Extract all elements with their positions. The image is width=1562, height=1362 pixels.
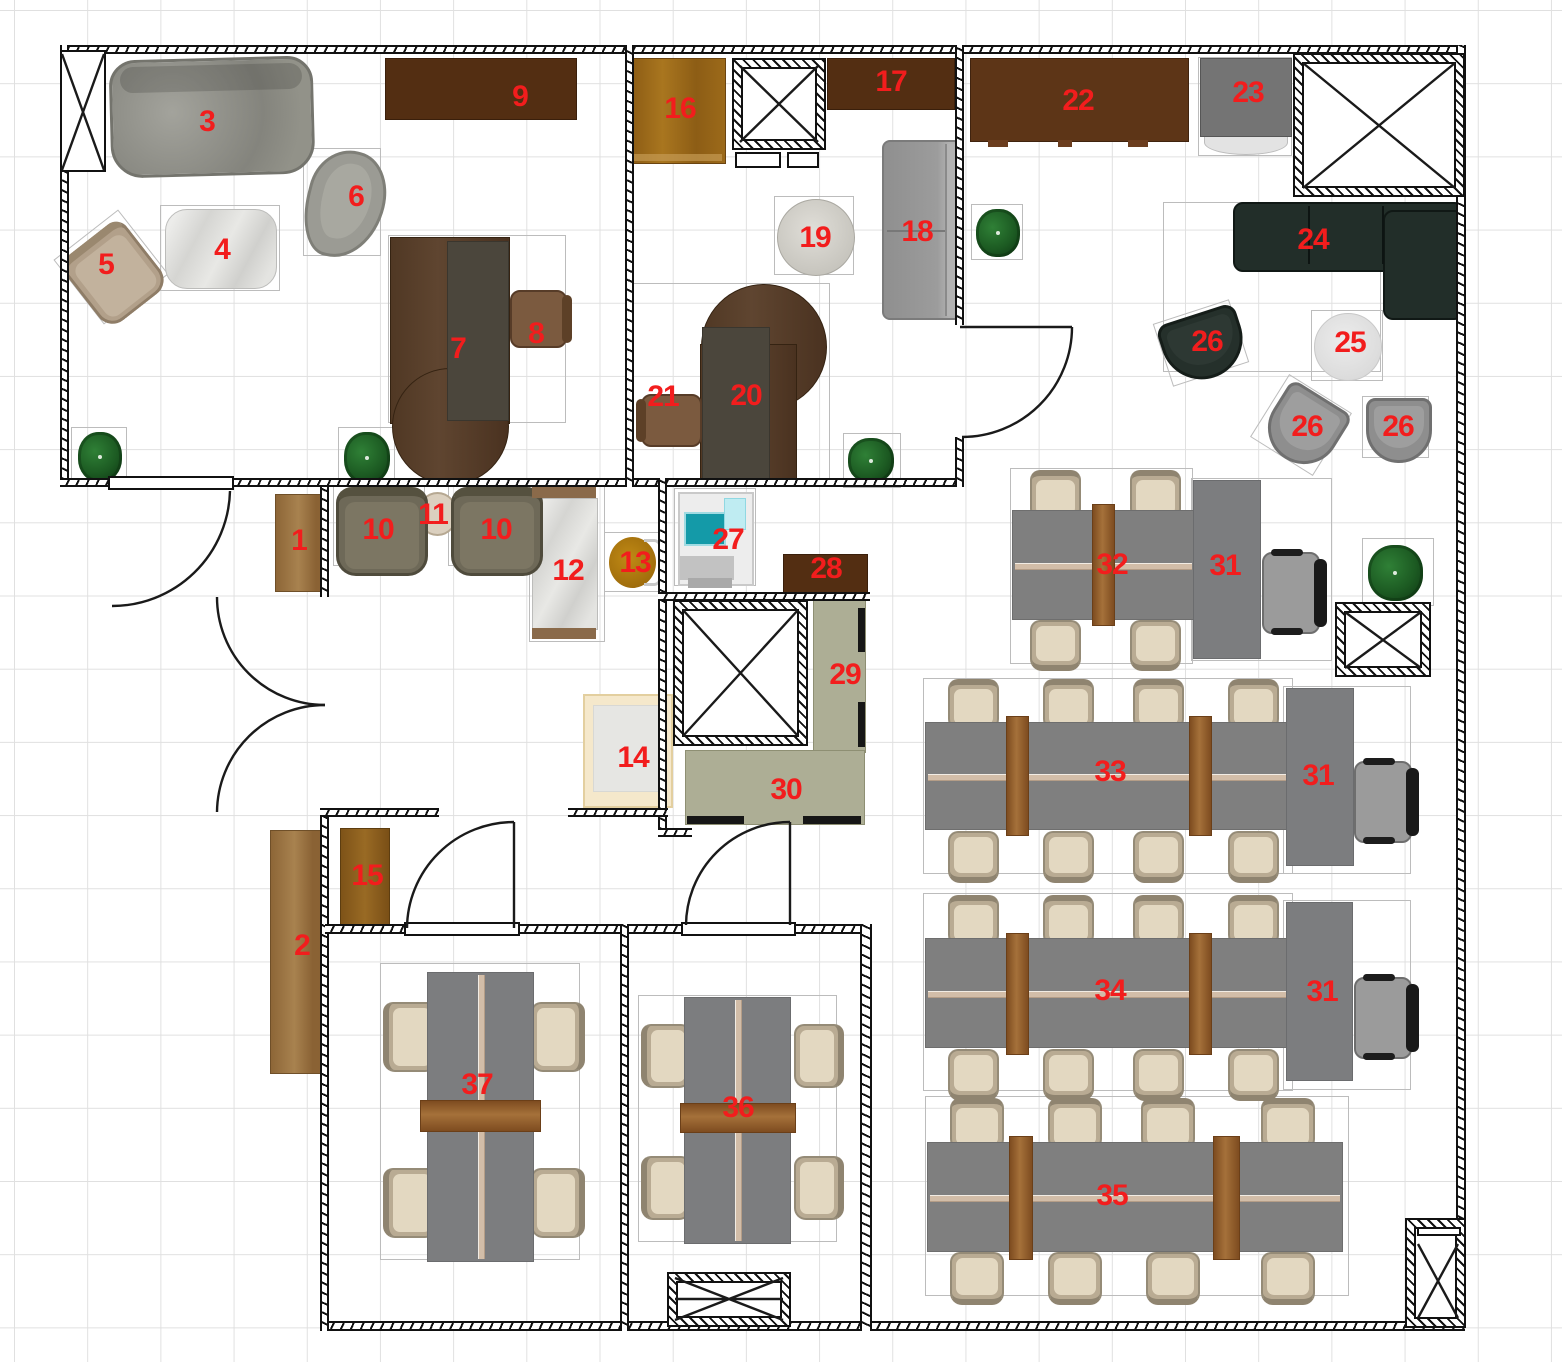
- item-label-13: 13: [619, 548, 650, 578]
- item-label-31: 31: [1302, 761, 1333, 791]
- item-label-28: 28: [810, 554, 841, 584]
- item-label-25: 25: [1334, 328, 1365, 358]
- chair[interactable]: [1133, 831, 1184, 883]
- item-label-26: 26: [1191, 327, 1222, 357]
- item-label-30: 30: [770, 775, 801, 805]
- desk-divider: [1189, 716, 1212, 836]
- chair[interactable]: [1228, 1049, 1279, 1101]
- item-label-3: 3: [199, 107, 215, 137]
- item-label-31: 31: [1209, 551, 1240, 581]
- item-label-22: 22: [1062, 86, 1093, 116]
- item-label-20: 20: [730, 381, 761, 411]
- door-panel[interactable]: [681, 922, 796, 936]
- elevator-shaft-icon: [732, 58, 826, 150]
- wall: [60, 478, 110, 487]
- desk-divider: [1006, 933, 1029, 1055]
- wall: [232, 478, 964, 487]
- printer-tray: [680, 556, 734, 580]
- item-label-14: 14: [617, 743, 648, 773]
- item-label-7: 7: [450, 334, 466, 364]
- shaft-door: [735, 152, 781, 168]
- desk-divider: [1009, 1136, 1033, 1260]
- desk-divider: [1006, 716, 1029, 836]
- chair[interactable]: [1043, 1049, 1094, 1101]
- wall: [320, 808, 439, 817]
- chair[interactable]: [950, 1252, 1004, 1305]
- door-panel[interactable]: [108, 476, 234, 490]
- desk-divider: [1189, 933, 1212, 1055]
- item-label-11: 11: [418, 500, 448, 530]
- item-label-34: 34: [1094, 976, 1125, 1006]
- sideboard-22-leg: [1128, 140, 1148, 147]
- bench-desk-35[interactable]: [927, 1142, 1343, 1252]
- item-label-21: 21: [647, 382, 678, 412]
- chair[interactable]: [1048, 1252, 1102, 1305]
- wall: [955, 437, 964, 487]
- chair[interactable]: [948, 1049, 999, 1101]
- counter-door-mark: [803, 816, 861, 824]
- item-label-6: 6: [348, 182, 364, 212]
- office-chair[interactable]: [1354, 761, 1412, 843]
- item-label-10: 10: [362, 515, 393, 545]
- item-label-27: 27: [712, 525, 743, 555]
- chair[interactable]: [794, 1156, 844, 1220]
- chair[interactable]: [794, 1024, 844, 1088]
- desk-7-worktop: [447, 241, 509, 421]
- wall: [325, 924, 405, 934]
- item-label-24: 24: [1297, 225, 1328, 255]
- console-table-12-cap: [532, 628, 596, 639]
- item-label-16: 16: [664, 94, 695, 124]
- item-label-29: 29: [829, 660, 860, 690]
- console-table-12-cap: [532, 487, 596, 498]
- shaft-door: [787, 152, 819, 168]
- item-label-19: 19: [799, 223, 830, 253]
- item-label-17: 17: [875, 67, 906, 97]
- item-label-5: 5: [98, 250, 114, 280]
- wall: [320, 810, 329, 1331]
- item-label-36: 36: [722, 1093, 753, 1123]
- chair[interactable]: [1130, 620, 1181, 671]
- plant-icon[interactable]: [848, 438, 894, 483]
- item-label-33: 33: [1094, 757, 1125, 787]
- item-label-26: 26: [1291, 412, 1322, 442]
- counter-door-mark: [687, 816, 744, 824]
- office-chair[interactable]: [1262, 552, 1320, 634]
- wall: [620, 924, 629, 1331]
- wall: [568, 808, 668, 817]
- duct-shaft-icon: [1335, 602, 1431, 677]
- table-37-runner: [420, 1100, 541, 1132]
- chair[interactable]: [1261, 1252, 1315, 1305]
- desk-divider: [1213, 1136, 1240, 1260]
- wall: [320, 478, 329, 597]
- plant-icon[interactable]: [78, 432, 122, 482]
- chair[interactable]: [531, 1168, 585, 1238]
- item-label-9: 9: [512, 82, 528, 112]
- sideboard-22-leg: [1058, 140, 1072, 147]
- sideboard-9[interactable]: [385, 58, 577, 120]
- plant-icon[interactable]: [344, 432, 390, 484]
- item-label-18: 18: [901, 217, 932, 247]
- window-icon: [60, 50, 106, 172]
- printer-base: [688, 578, 732, 588]
- wall: [325, 1321, 1465, 1331]
- stair-shaft-icon: [667, 1272, 791, 1327]
- item-label-12: 12: [552, 556, 583, 586]
- elevator-shaft-icon: [673, 600, 808, 746]
- chair[interactable]: [1043, 831, 1094, 883]
- item-label-15: 15: [351, 861, 382, 891]
- shaft-door: [1417, 1227, 1461, 1236]
- wall: [658, 828, 692, 837]
- item-label-37: 37: [461, 1070, 492, 1100]
- corner-sofa-24-chaise[interactable]: [1383, 210, 1464, 320]
- item-label-4: 4: [214, 235, 230, 265]
- item-label-10: 10: [480, 515, 511, 545]
- office-chair[interactable]: [1354, 977, 1412, 1059]
- item-label-2: 2: [294, 931, 310, 961]
- chair[interactable]: [531, 1002, 585, 1072]
- sideboard-22-leg: [988, 140, 1008, 147]
- chair[interactable]: [1228, 831, 1279, 883]
- plant-icon[interactable]: [976, 209, 1020, 257]
- counter-door-mark: [858, 702, 865, 747]
- sofa-cushion-line: [1382, 206, 1384, 264]
- wall: [860, 924, 872, 1331]
- item-label-23: 23: [1232, 78, 1263, 108]
- wall: [625, 45, 634, 487]
- wall: [955, 45, 964, 325]
- floor-plan-canvas: 1 2 3 4 5 6 7 8 9 10 10 11 12 13 14 15 1…: [0, 0, 1562, 1362]
- wall: [60, 45, 1465, 54]
- chair[interactable]: [1133, 1049, 1184, 1101]
- plant-icon[interactable]: [1368, 545, 1423, 601]
- item-label-32: 32: [1096, 550, 1127, 580]
- item-label-8: 8: [528, 319, 544, 349]
- item-label-26: 26: [1382, 412, 1413, 442]
- item-label-31: 31: [1306, 977, 1337, 1007]
- elevator-shaft-icon: [1293, 53, 1465, 197]
- wall: [1456, 45, 1466, 1225]
- wall: [658, 478, 667, 837]
- chair[interactable]: [948, 831, 999, 883]
- door-panel[interactable]: [404, 922, 520, 936]
- chair[interactable]: [1030, 620, 1081, 671]
- counter-door-mark: [858, 608, 865, 652]
- item-label-1: 1: [291, 526, 307, 556]
- item-label-35: 35: [1096, 1181, 1127, 1211]
- chair[interactable]: [1146, 1252, 1200, 1305]
- wall: [519, 924, 683, 934]
